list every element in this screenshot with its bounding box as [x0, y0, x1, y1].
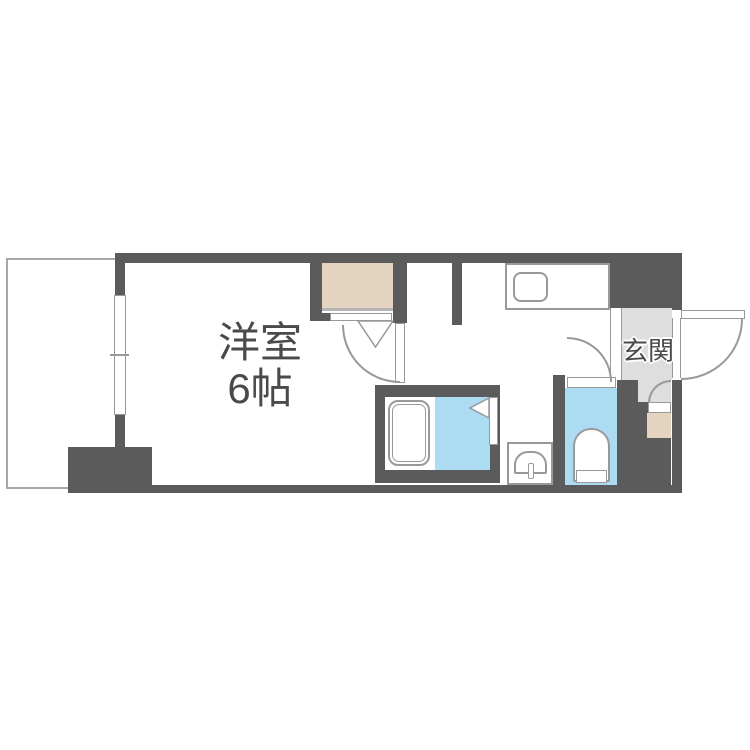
entrance-door-arc [681, 319, 743, 380]
wall-corner-block [68, 447, 152, 493]
window-center-tick [110, 354, 129, 356]
wall-kitchen-stub [452, 253, 462, 325]
bathroom-floor [435, 397, 490, 470]
room-size-text: 6帖 [160, 366, 360, 412]
wall-toilet-right [617, 377, 638, 493]
kitchen-sink [513, 272, 548, 302]
wall-topright-block [610, 253, 682, 310]
room-label: 洋室 6帖 [160, 320, 360, 412]
bathtub-inner [392, 404, 426, 462]
wall-bottom [152, 485, 682, 493]
washbasin-faucet [528, 463, 534, 479]
toilet-door-arc [567, 337, 612, 382]
wall-toilet-left [553, 375, 565, 485]
wall-genkan-b [647, 438, 671, 493]
shoe-cabinet-door-leaf [648, 402, 671, 413]
wall-closet-right [393, 253, 407, 323]
closet-floor [322, 263, 393, 311]
floorplan: 洋室 6帖 玄関 [0, 0, 750, 750]
wall-right-lower [672, 380, 682, 493]
entrance-door-leaf [681, 310, 745, 319]
entrance-label: 玄関 [616, 336, 680, 366]
toilet-tank [576, 470, 607, 483]
wall-left-upper [115, 253, 125, 295]
bathroom-door-strip [489, 397, 498, 445]
wall-closet-left [310, 253, 322, 313]
room-name-text: 洋室 [160, 320, 360, 366]
shoe-cabinet [647, 413, 671, 438]
